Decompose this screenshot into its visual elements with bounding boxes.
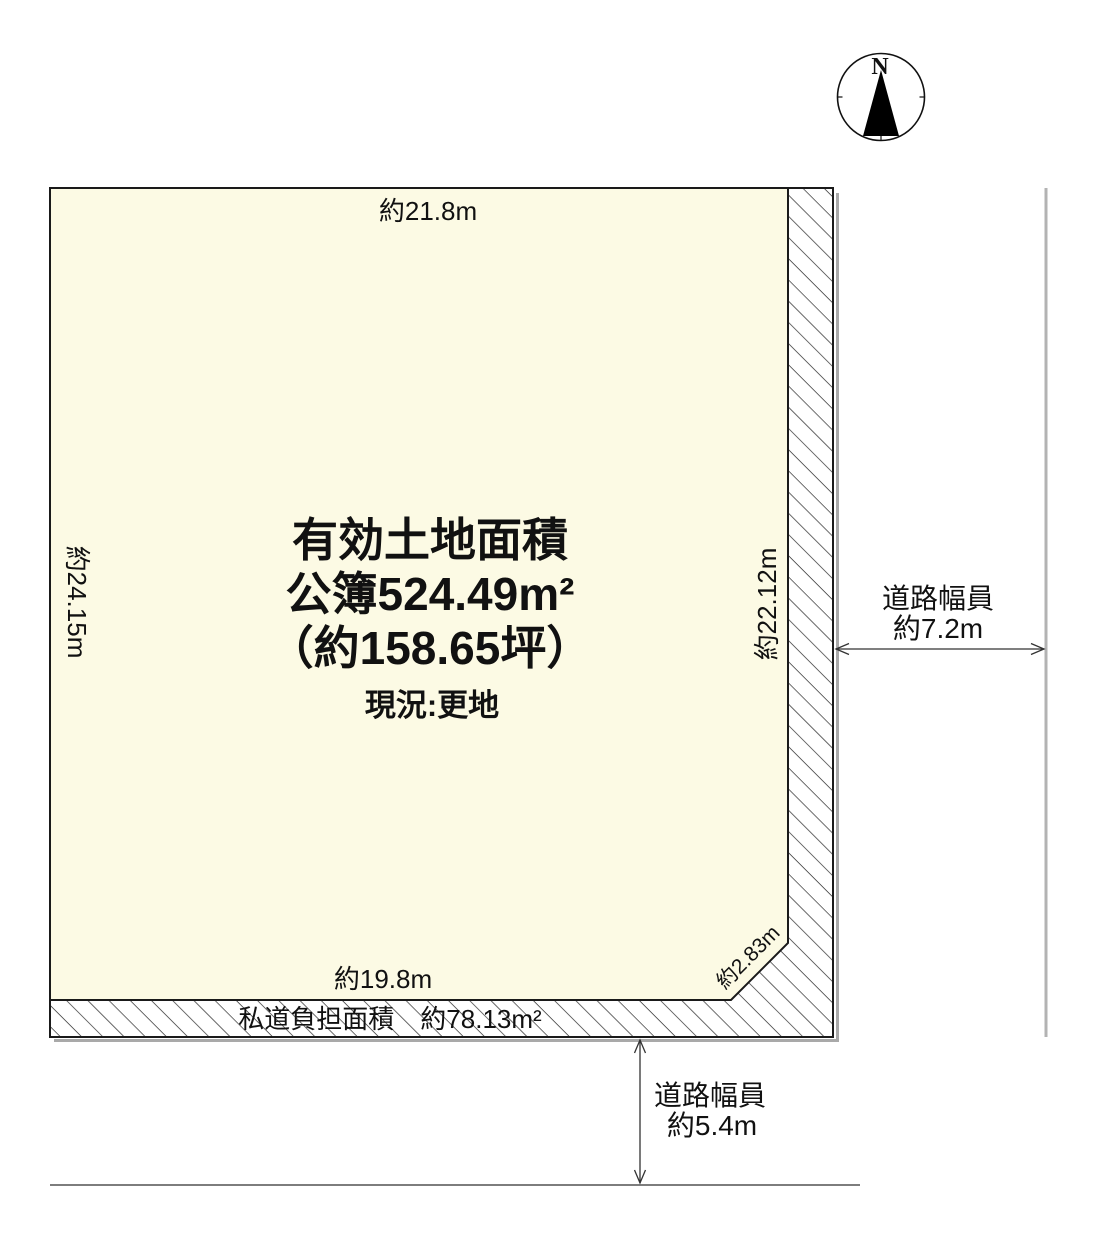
- dimension-left-height: 約24.15m: [62, 546, 92, 659]
- private-road-burden-label: 私道負担面積 約78.13m²: [238, 1004, 542, 1034]
- south-road-width-arrow: [635, 1040, 646, 1183]
- diagram-canvas: N 約21.8m 約24.15m 約22.12m 約19.8m 約2.83m 有…: [0, 0, 1096, 1242]
- south-road-label: 道路幅員: [654, 1080, 766, 1111]
- parcel-area-title: 有効土地面積: [292, 514, 568, 566]
- parcel-area-registered: 公簿524.49m²: [286, 568, 575, 620]
- south-road-width-value: 約5.4m: [667, 1110, 757, 1141]
- parcel-area-tsubo: （約158.65坪）: [268, 622, 593, 674]
- north-compass: N: [838, 54, 925, 141]
- compass-north-label: N: [871, 54, 889, 80]
- east-road-width-arrow: [836, 644, 1044, 655]
- south-road-annotation: 道路幅員 約5.4m: [654, 1080, 766, 1141]
- dimension-top-width: 約21.8m: [379, 196, 477, 226]
- dimension-right-height: 約22.12m: [752, 548, 782, 661]
- dimension-bottom-width: 約19.8m: [334, 964, 432, 994]
- east-road-annotation: 道路幅員 約7.2m: [882, 583, 994, 644]
- land-plot-diagram: N 約21.8m 約24.15m 約22.12m 約19.8m 約2.83m 有…: [0, 0, 1096, 1242]
- parcel-current-status: 現況:更地: [365, 688, 499, 723]
- east-road-label: 道路幅員: [882, 583, 994, 614]
- east-road-width-value: 約7.2m: [893, 613, 983, 644]
